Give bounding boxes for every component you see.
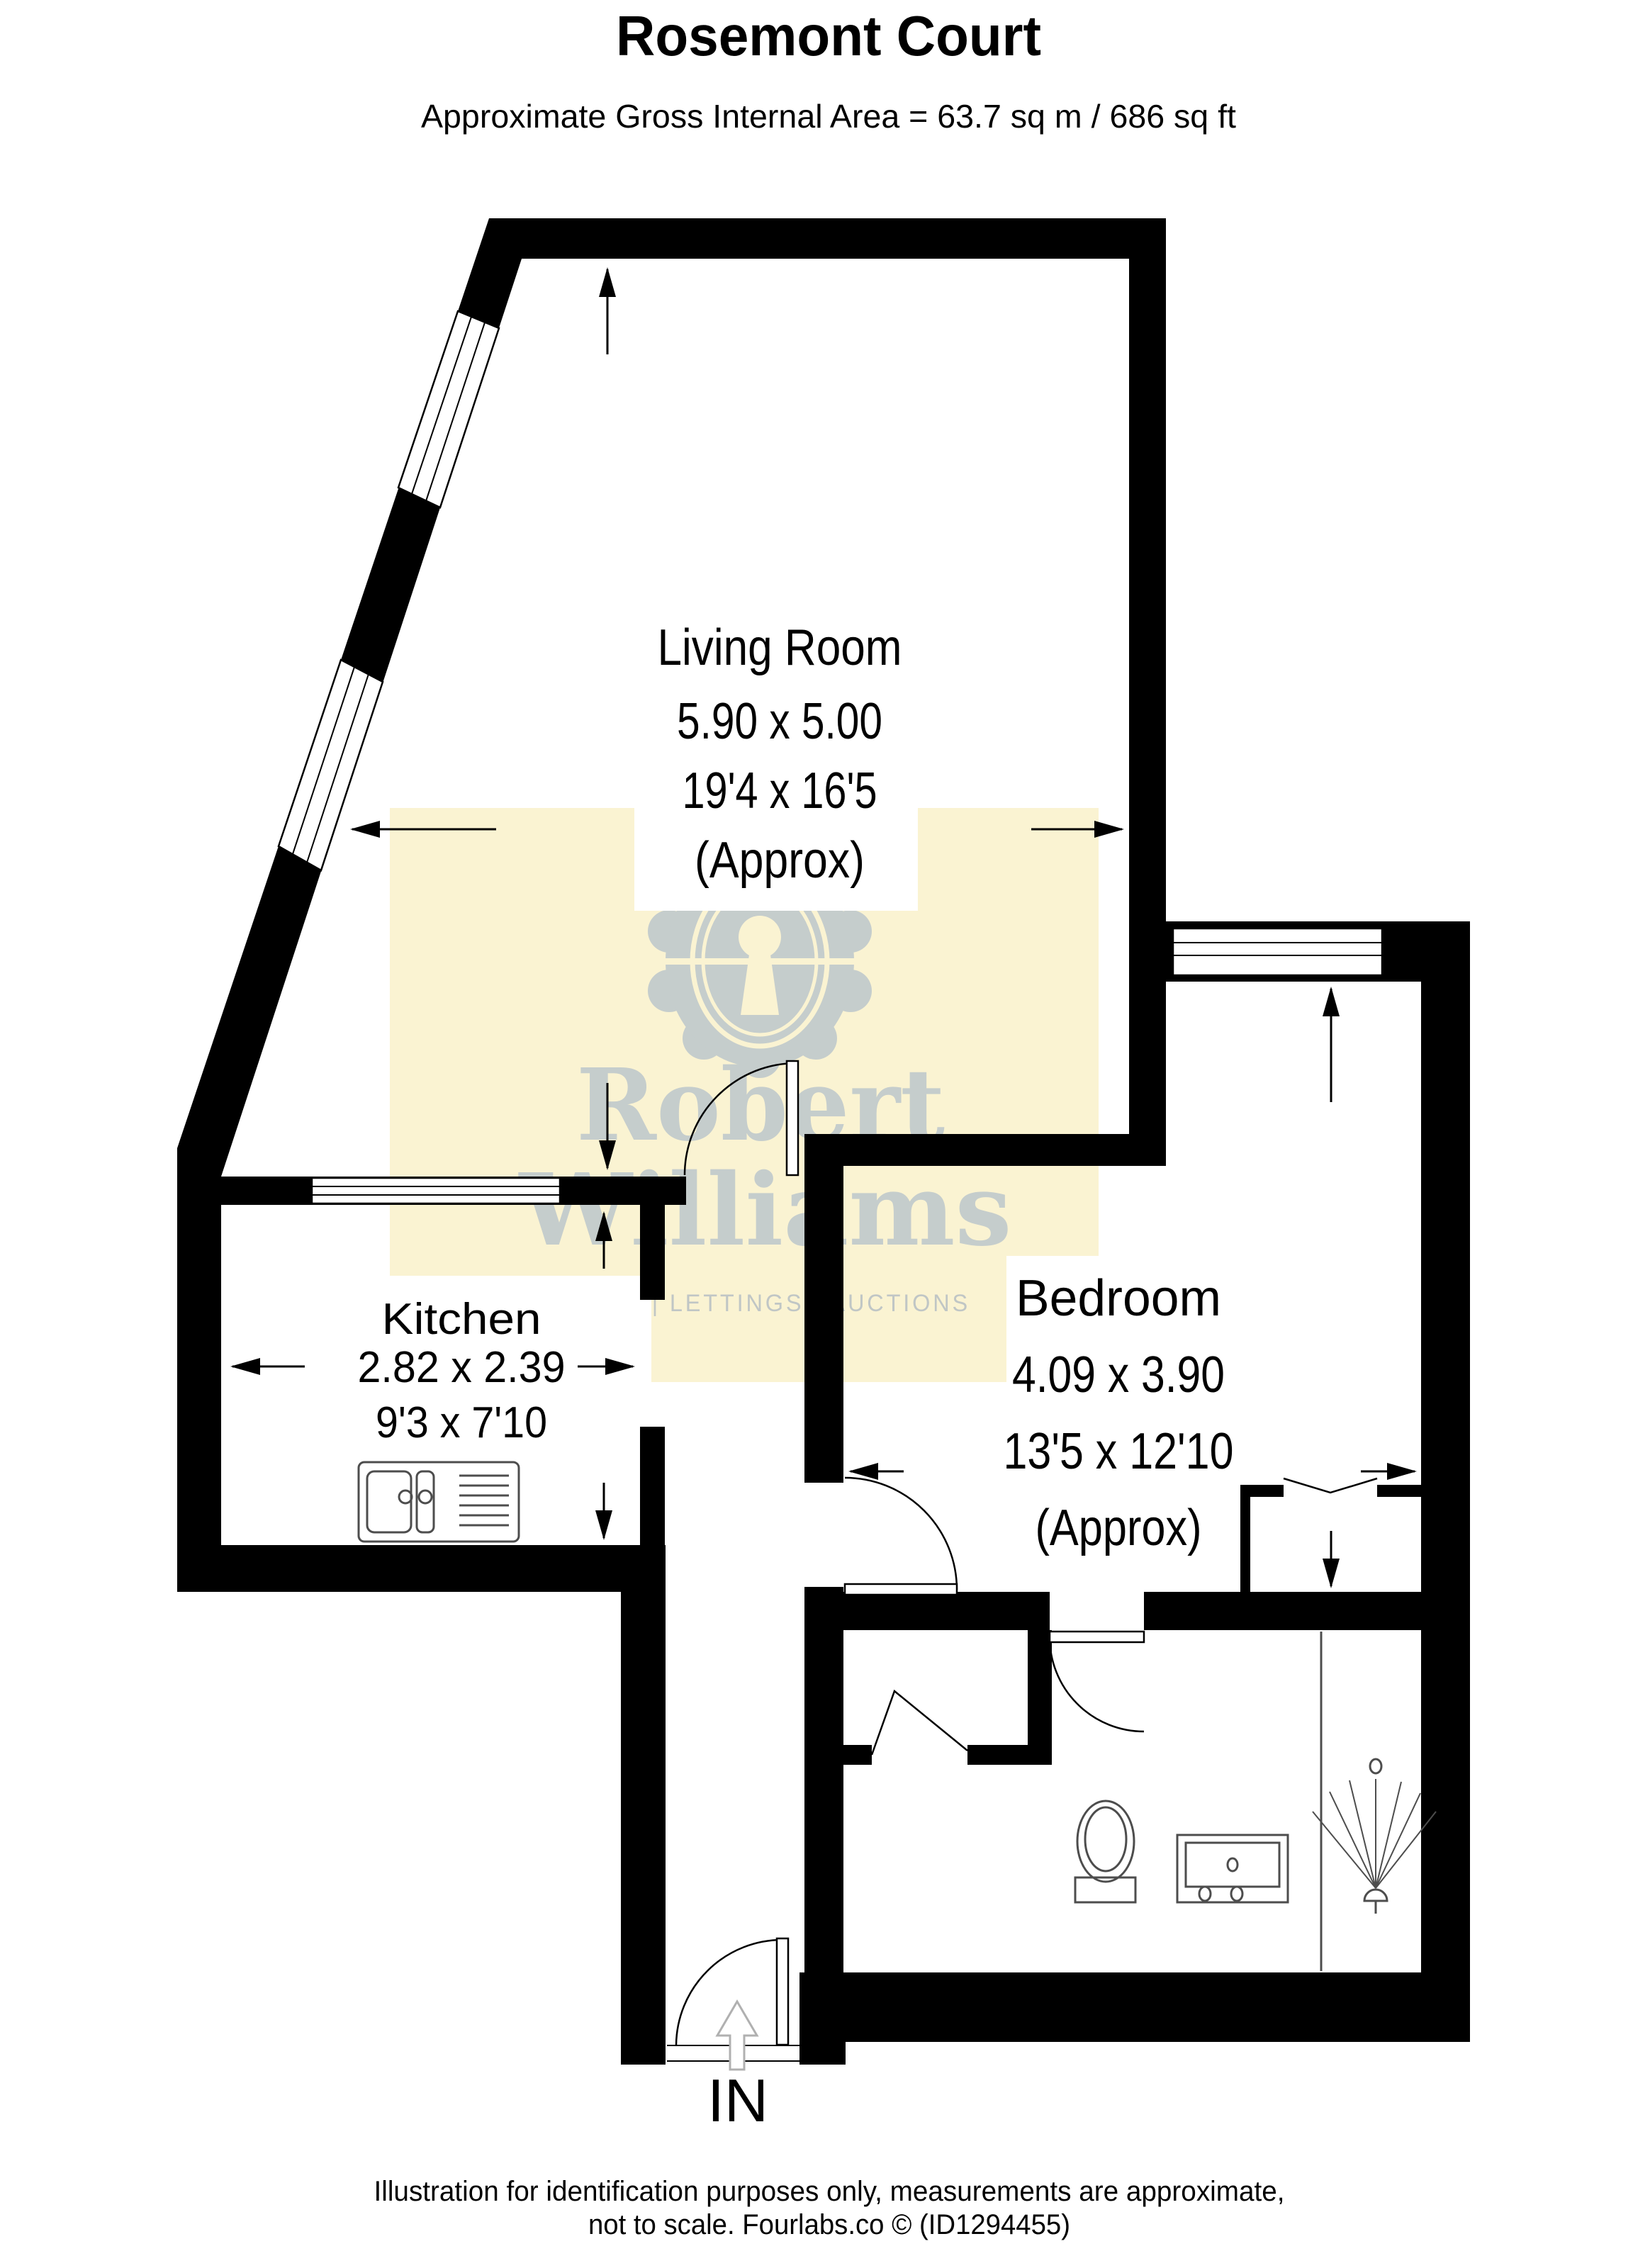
window-living-lower [279,660,383,870]
page-title: Rosemont Court [616,4,1041,67]
bedroom-imperial: 13'5 x 12'10 [1004,1423,1234,1480]
window-living-upper [398,311,499,507]
wall-cupboard-right [1028,1630,1052,1765]
wall-cupboard-bottom-left [843,1745,872,1765]
wall-closet-top-right [1377,1485,1421,1497]
entry-arrow-icon [717,2002,757,2070]
door-bedroom [845,1478,957,1595]
door-bathroom [1050,1632,1144,1731]
living-room-name: Living Room [658,619,902,676]
door-cupboard [872,1691,967,1755]
walls [177,218,1470,2065]
vanity-basin-icon [1177,1835,1288,1902]
living-room-approx: (Approx) [695,832,865,889]
page-subtitle: Approximate Gross Internal Area = 63.7 s… [421,98,1236,135]
wall-bedroom-bottom-left [804,1592,1050,1630]
wall-living-top [489,218,1166,259]
wall-bedroom-top [804,1134,1166,1166]
wall-bedroom-left-lower [804,1587,843,1972]
footer-line2: not to scale. Fourlabs.co © (ID1294455) [588,2209,1070,2240]
kitchen-name: Kitchen [382,1295,541,1344]
toilet-icon [1075,1801,1135,1902]
wall-bedroom-left-upper [804,1166,843,1483]
wall-living-right [1129,218,1166,1166]
wall-kitchen-left [177,1148,221,1592]
kitchen-label: Kitchen 2.82 x 2.39 9'3 x 7'10 [358,1295,566,1447]
door-closet-bifold [1284,1478,1377,1493]
living-room-metric: 5.90 x 5.00 [677,693,882,750]
living-room-imperial: 19'4 x 16'5 [683,763,877,819]
bedroom-metric: 4.09 x 3.90 [1012,1347,1225,1403]
wall-closet-top-left [1240,1485,1284,1497]
wall-kitchen-bottom [177,1545,666,1592]
entrance-label: IN [707,2067,768,2135]
wall-entry-left-post [621,1592,666,2065]
kitchen-imperial: 9'3 x 7'10 [376,1398,547,1447]
wall-right-outer [1421,921,1470,2042]
wall-entry-right-post [799,1972,846,2065]
floorplan-drawing: Rosemont Court Approximate Gross Interna… [0,0,1633,2268]
bedroom-name: Bedroom [1016,1270,1221,1327]
wall-bathroom-bottom [842,1972,1470,2042]
bedroom-approx: (Approx) [1036,1500,1202,1556]
wall-bedroom-bottom-right [1144,1592,1470,1630]
kitchen-metric: 2.82 x 2.39 [358,1343,566,1392]
wall-kitchen-right-upper [640,1205,665,1300]
floorplan-page: Rosemont Court Approximate Gross Interna… [0,0,1633,2268]
shower-icon [1313,1632,1436,1971]
footer: Illustration for identification purposes… [374,2176,1285,2240]
window-kitchen [312,1178,560,1203]
watermark-line2: Williams [517,1152,1011,1269]
window-bedroom [1168,924,1387,975]
wall-closet-left [1240,1497,1250,1592]
footer-line1: Illustration for identification purposes… [374,2176,1285,2207]
wall-cupboard-bottom-right [967,1745,1040,1765]
wall-kitchen-right-lower [640,1427,665,1545]
header: Rosemont Court Approximate Gross Interna… [421,4,1236,135]
